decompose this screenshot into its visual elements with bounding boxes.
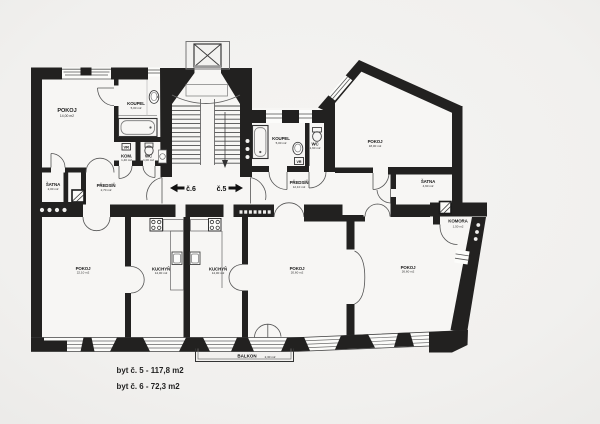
- svg-text:12,10 m2: 12,10 m2: [293, 185, 306, 189]
- svg-text:1,00 m2: 1,00 m2: [143, 158, 154, 162]
- svg-text:14,00 m2: 14,00 m2: [60, 114, 74, 118]
- svg-text:4,60 m2: 4,60 m2: [423, 184, 434, 188]
- svg-text:22,10 m2: 22,10 m2: [77, 271, 90, 275]
- svg-text:26,60 m2: 26,60 m2: [402, 270, 415, 274]
- svg-text:2,00 m2: 2,00 m2: [48, 187, 59, 191]
- svg-text:KOMORA: KOMORA: [448, 219, 468, 224]
- svg-text:1,50 m2: 1,50 m2: [453, 225, 464, 229]
- svg-text:VR: VR: [124, 145, 130, 150]
- svg-text:VR: VR: [297, 160, 302, 164]
- svg-text:byt č. 5 - 117,8 m2: byt č. 5 - 117,8 m2: [117, 366, 185, 375]
- svg-text:18,00 m2: 18,00 m2: [369, 144, 382, 148]
- svg-text:č.6: č.6: [186, 186, 196, 193]
- svg-text:byt č. 6 - 72,3 m2: byt č. 6 - 72,3 m2: [117, 382, 181, 391]
- svg-text:5,00 m2: 5,00 m2: [131, 106, 142, 110]
- svg-text:20,60 m2: 20,60 m2: [291, 271, 304, 275]
- svg-text:2,70 m2: 2,70 m2: [101, 188, 112, 192]
- svg-text:1,40 m2: 1,40 m2: [121, 158, 132, 162]
- svg-text:2,30 m2: 2,30 m2: [265, 355, 276, 359]
- svg-text:BALKON: BALKON: [237, 354, 256, 359]
- svg-text:5,00 m2: 5,00 m2: [276, 141, 287, 145]
- svg-text:č.5: č.5: [217, 186, 227, 193]
- svg-text:1,60 m2: 1,60 m2: [310, 146, 321, 150]
- svg-text:14,00 m2: 14,00 m2: [212, 271, 225, 275]
- svg-text:14,00 m2: 14,00 m2: [155, 271, 168, 275]
